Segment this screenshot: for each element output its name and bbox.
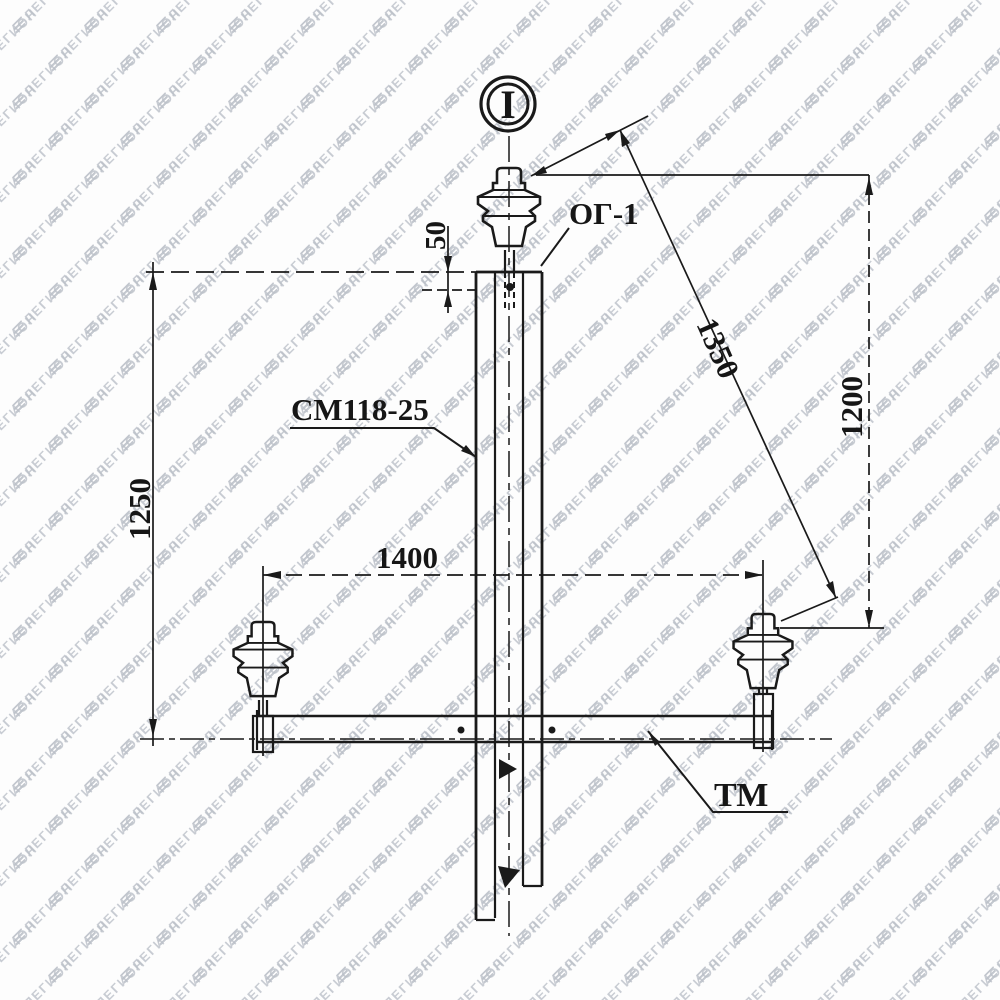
section-marker: I (481, 77, 535, 131)
dimension-1250-label: 1250 (122, 478, 157, 540)
section-marker-label: I (500, 82, 516, 127)
dimension-50-label: 50 (420, 221, 452, 250)
crossarm (140, 710, 832, 750)
crossarm-type-label: ТМ (714, 777, 768, 814)
scanned-technical-drawing: ЛЕГИОНЛЕГИОНЛЕГИОНЛЕГИОНЛЕГИОНЛЕГИОНЛЕГИ… (0, 0, 1000, 1000)
dimension-1200-label: 1200 (834, 376, 869, 438)
pole-assembly-drawing: I (0, 0, 1000, 1000)
pin-bolt (506, 283, 514, 291)
dimension-1350-label: 1350 (690, 313, 747, 384)
dimension-1400-label: 1400 (376, 540, 438, 575)
axis-break-arrow (498, 866, 520, 888)
dimension-arrowheads (149, 130, 873, 737)
crossarm-bolt (458, 727, 465, 734)
axis-break-arrow (499, 759, 517, 779)
pole-type-label: СМ118-25 (291, 392, 429, 427)
crossarm-bolt (549, 727, 556, 734)
hook-type-label: ОГ-1 (569, 196, 639, 231)
